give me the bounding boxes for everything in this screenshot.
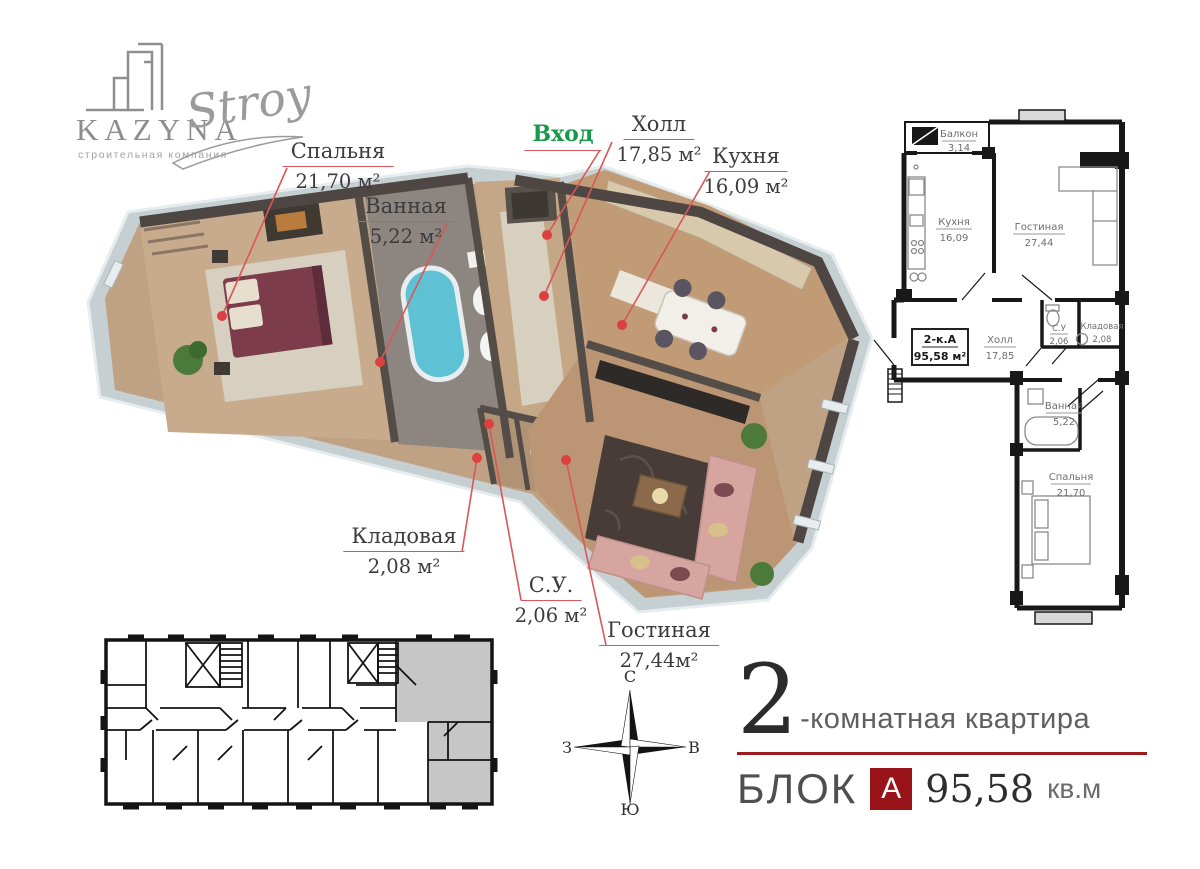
room-area: 16,09 м² [703,172,788,198]
block-area-row: БЛОК А 95,58 кв.м [737,765,1147,813]
entry-label: Вход [524,121,601,151]
room-area: 2,06 [1050,337,1069,347]
building-floor-plan [98,630,503,820]
room-label-living: Гостиная 27,44м² [599,618,719,672]
room-name: Балкон [940,129,978,140]
wall-pillars [896,147,1129,605]
room-label-bath: Ванная 5,22 м² [357,194,455,248]
entry-text: Вход [524,121,601,151]
room-area: 5,22 м² [357,222,455,248]
room-name: Спальня [283,139,394,167]
room-area: 16,09 [940,233,969,244]
room-name: Кухня [704,144,788,172]
compass-west: З [562,738,572,757]
room-name: Спальня [1049,472,1094,483]
title-block: 2 -комнатная квартира БЛОК А 95,58 кв.м [737,648,1147,813]
room-area: 5,22 [1053,417,1075,428]
room-name: Холл [624,112,694,140]
total-area-unit: кв.м [1047,773,1101,805]
room-area: 27,44 [1025,238,1054,249]
unit-code: 2-к.А [924,333,957,346]
unit-area: 95,58 м² [914,350,967,363]
room-label-kitchen: Кухня 16,09 м² [703,144,788,198]
room-name: Кухня [938,217,970,228]
room-name: Гостиная [599,618,719,646]
room-name: Ванная [1045,401,1083,412]
buildings-logo-icon [82,36,202,114]
room-area: 21,70 [1057,488,1086,499]
room-label-hall: Холл 17,85 м² [616,112,701,166]
room-area: 2,08 м² [343,552,464,578]
red-divider-rule [737,752,1147,755]
room-area: 21,70 м² [283,167,394,193]
apartment-2d-schematic: 2-к.А 95,58 м² Балкон 3,14 Кухня 16,09 Г… [872,103,1142,648]
block-letter-badge: А [870,768,912,810]
room-name: Кладовая [343,524,464,552]
room-name: Кладовая [1080,322,1123,332]
rooms-count: 2 [737,661,798,740]
room-name: С.У [1052,324,1067,334]
room-area: 17,85 м² [616,140,701,166]
compass-east: В [688,738,700,757]
apartment-type-row: 2 -комнатная квартира [737,648,1147,740]
room-area: 17,85 [986,351,1015,362]
bedroom-3d [140,193,392,440]
compass-south: Ю [620,800,639,816]
brand-script: Stroy [183,67,316,140]
rooms-count-label: -комнатная квартира [798,703,1090,740]
room-name: Гостиная [1015,222,1064,233]
schematic-room-labels: Балкон 3,14 Кухня 16,09 Гостиная 27,44 Х… [936,129,1124,499]
room-name: Холл [987,335,1013,346]
room-area: 2,08 [1093,335,1112,345]
room-area: 2,06 м² [515,601,588,627]
room-name: С.У. [521,573,582,601]
compass-rose: С В Ю З [560,666,700,816]
total-area-value: 95,58 [925,767,1034,811]
room-label-bedroom: Спальня 21,70 м² [283,139,394,193]
room-label-wc: С.У. 2,06 м² [515,573,588,627]
room-label-storage: Кладовая 2,08 м² [343,524,464,578]
apartment-3d-render [60,150,880,640]
room-area: 3,14 [948,143,970,154]
block-word: БЛОК [737,765,857,813]
room-name: Ванная [357,194,455,222]
compass-north: С [624,667,636,686]
